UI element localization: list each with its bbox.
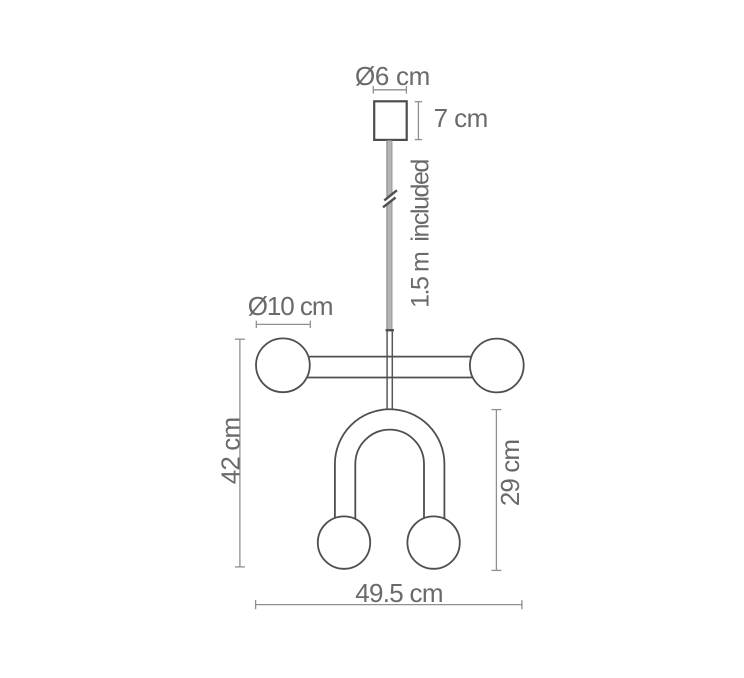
svg-text:7 cm: 7 cm: [434, 103, 488, 133]
svg-text:49.5 cm: 49.5 cm: [355, 578, 443, 608]
svg-text:42 cm: 42 cm: [215, 418, 245, 485]
svg-text:Ø10 cm: Ø10 cm: [248, 291, 333, 321]
svg-text:29 cm: 29 cm: [495, 440, 525, 506]
svg-text:1.5 m included: 1.5 m included: [406, 160, 434, 308]
svg-text:Ø6 cm: Ø6 cm: [355, 61, 430, 91]
